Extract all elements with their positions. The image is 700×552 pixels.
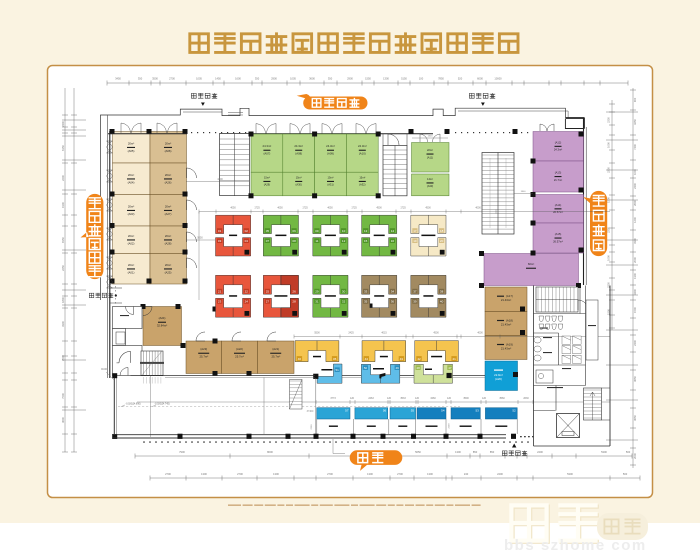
svg-text:1600: 1600	[235, 77, 241, 81]
svg-text:8000: 8000	[267, 450, 273, 454]
svg-text:21.7m²: 21.7m²	[554, 178, 562, 182]
svg-text:(A01): (A01)	[128, 270, 135, 274]
svg-text:1200: 1200	[633, 217, 637, 223]
svg-text:350: 350	[255, 77, 260, 81]
svg-text:1300: 1300	[633, 273, 637, 279]
svg-text:39: 39	[413, 300, 417, 304]
svg-text:37: 37	[413, 289, 417, 293]
svg-text:(A28): (A28)	[165, 241, 172, 245]
svg-text:2700: 2700	[327, 472, 333, 476]
svg-text:4400: 4400	[217, 178, 223, 181]
svg-text:(A33): (A33)	[427, 184, 433, 188]
svg-text:15m²: 15m²	[296, 176, 302, 180]
svg-text:3600: 3600	[61, 417, 65, 423]
svg-text:15: 15	[364, 239, 368, 243]
svg-text:120: 120	[350, 397, 355, 400]
svg-text:56: 56	[383, 409, 387, 413]
svg-text:1300: 1300	[455, 450, 461, 454]
svg-text:3600: 3600	[309, 77, 315, 81]
svg-text:32.84m²: 32.84m²	[157, 324, 167, 328]
svg-text:36: 36	[391, 300, 395, 304]
svg-text:850: 850	[473, 450, 478, 454]
svg-text:20: 20	[440, 239, 444, 243]
svg-text:48: 48	[416, 366, 420, 370]
svg-text:2463: 2463	[368, 397, 374, 400]
svg-text:28: 28	[292, 300, 296, 304]
svg-text:1725: 1725	[400, 207, 406, 210]
svg-text:20m²: 20m²	[165, 263, 171, 267]
svg-text:5050: 5050	[197, 237, 203, 240]
svg-text:11: 11	[315, 239, 318, 243]
svg-text:15m²: 15m²	[328, 176, 334, 180]
svg-text:20m²: 20m²	[128, 173, 134, 177]
svg-text:1300: 1300	[427, 472, 433, 476]
svg-text:24.3m²: 24.3m²	[263, 144, 272, 148]
svg-text:2700: 2700	[237, 472, 243, 476]
svg-text:1725: 1725	[254, 207, 260, 210]
svg-text:01: 01	[218, 229, 222, 233]
svg-text:26: 26	[292, 289, 296, 293]
svg-text:16: 16	[391, 239, 395, 243]
svg-text:46: 46	[298, 357, 302, 361]
svg-text:1005: 1005	[196, 77, 202, 81]
svg-text:2200: 2200	[311, 424, 313, 430]
svg-text:4050: 4050	[277, 207, 283, 210]
svg-text:2900: 2900	[271, 77, 277, 81]
svg-text:120: 120	[447, 397, 452, 400]
svg-text:3560: 3560	[499, 397, 505, 400]
svg-text:(A05): (A05)	[128, 149, 135, 153]
svg-text:1000: 1000	[607, 255, 611, 261]
svg-text:1725: 1725	[302, 207, 308, 210]
svg-text:(A26): (A26)	[165, 180, 172, 184]
svg-text:2400: 2400	[633, 340, 637, 346]
svg-text:1300: 1300	[428, 136, 434, 138]
svg-text:(A32): (A32)	[359, 183, 365, 187]
svg-text:14m²: 14m²	[427, 177, 433, 181]
svg-text:3400: 3400	[633, 289, 637, 295]
svg-text:20m²: 20m²	[128, 263, 134, 267]
svg-text:(A09): (A09)	[327, 152, 334, 156]
svg-text:10: 10	[342, 229, 346, 233]
svg-text:25: 25	[266, 289, 270, 293]
svg-text:37400: 37400	[307, 410, 314, 413]
svg-text:24: 24	[245, 300, 249, 304]
svg-text:51: 51	[336, 368, 340, 372]
svg-text:13: 13	[364, 229, 368, 233]
svg-text:4050: 4050	[327, 207, 333, 210]
svg-text:2250: 2250	[607, 117, 611, 123]
svg-text:24.3m²: 24.3m²	[554, 148, 562, 152]
svg-text:1725: 1725	[351, 207, 357, 210]
svg-text:6150: 6150	[61, 145, 65, 151]
svg-text:29: 29	[315, 289, 319, 293]
svg-text:06: 06	[292, 229, 296, 233]
svg-text:-0.020(24.745): -0.020(24.745)	[154, 404, 169, 406]
svg-text:5150: 5150	[401, 77, 407, 81]
svg-text:57: 57	[345, 409, 349, 413]
svg-text:100: 100	[419, 77, 424, 81]
svg-text:5650: 5650	[415, 450, 421, 454]
svg-text:21.43m²: 21.43m²	[501, 298, 511, 302]
svg-text:(A06): (A06)	[165, 149, 172, 153]
svg-text:2400: 2400	[633, 183, 637, 189]
svg-text:120: 120	[482, 397, 487, 400]
svg-text:20m²: 20m²	[128, 234, 134, 238]
svg-text:(A14): (A14)	[555, 203, 562, 207]
svg-text:2250: 2250	[61, 265, 65, 271]
svg-text:3500: 3500	[463, 397, 469, 400]
svg-text:1300: 1300	[367, 472, 373, 476]
svg-text:900: 900	[633, 97, 637, 102]
svg-text:30: 30	[342, 289, 346, 293]
svg-text:14: 14	[391, 229, 395, 233]
svg-text:1900: 1900	[61, 202, 65, 208]
svg-text:5500: 5500	[314, 332, 320, 335]
svg-text:1500: 1500	[633, 307, 637, 313]
svg-text:22m²: 22m²	[427, 148, 433, 152]
svg-text:22: 22	[245, 289, 249, 293]
svg-text:3300: 3300	[61, 321, 65, 327]
svg-text:03: 03	[218, 239, 222, 243]
svg-text:2700: 2700	[397, 472, 403, 476]
svg-text:21.43m²: 21.43m²	[501, 346, 511, 350]
svg-text:3533: 3533	[400, 397, 406, 400]
svg-text:23: 23	[218, 300, 222, 304]
svg-text:2000: 2000	[633, 453, 637, 459]
svg-text:7900: 7900	[179, 450, 185, 454]
svg-text:2425: 2425	[348, 332, 354, 335]
svg-text:(A08): (A08)	[295, 152, 302, 156]
svg-text:(A27): (A27)	[165, 212, 172, 216]
svg-text:50: 50	[364, 366, 368, 370]
svg-text:3650: 3650	[633, 415, 637, 421]
svg-text:2500: 2500	[61, 355, 65, 361]
svg-text:6000: 6000	[477, 77, 483, 81]
svg-text:(A10): (A10)	[359, 152, 366, 156]
svg-text:2200: 2200	[449, 423, 451, 429]
svg-text:(A12): (A12)	[555, 140, 562, 144]
svg-text:20m²: 20m²	[128, 142, 134, 146]
svg-text:54: 54	[441, 409, 445, 413]
svg-text:4500: 4500	[376, 207, 382, 210]
svg-text:17: 17	[413, 229, 417, 233]
svg-text:3450: 3450	[115, 77, 121, 81]
svg-text:1450: 1450	[215, 77, 221, 81]
svg-text:1300: 1300	[201, 472, 207, 476]
svg-text:44: 44	[365, 357, 369, 361]
svg-text:(A02): (A02)	[128, 241, 135, 245]
svg-text:27: 27	[266, 300, 270, 304]
svg-text:1300: 1300	[383, 77, 389, 81]
svg-text:240: 240	[464, 472, 469, 476]
svg-text:18: 18	[440, 229, 444, 233]
svg-text:3650: 3650	[633, 376, 637, 382]
svg-text:60m²: 60m²	[528, 262, 534, 266]
svg-text:2000: 2000	[633, 257, 637, 263]
svg-text:38: 38	[440, 289, 444, 293]
svg-text:02: 02	[245, 229, 249, 233]
svg-text:2600: 2600	[633, 200, 637, 206]
svg-text:35: 35	[364, 300, 368, 304]
svg-text:(A11): (A11)	[427, 155, 433, 159]
svg-text:08: 08	[292, 239, 296, 243]
svg-text:(A15): (A15)	[555, 232, 562, 236]
svg-text:32: 32	[342, 300, 346, 304]
svg-text:2250: 2250	[607, 167, 611, 173]
svg-text:04: 04	[245, 239, 249, 243]
svg-text:2400: 2400	[497, 472, 503, 476]
svg-text:24.3m²: 24.3m²	[326, 144, 335, 148]
svg-text:25.7m²: 25.7m²	[235, 355, 244, 359]
svg-text:3773: 3773	[330, 397, 336, 400]
svg-text:5300: 5300	[567, 472, 573, 476]
svg-text:(A30): (A30)	[296, 183, 302, 187]
svg-text:1005: 1005	[290, 77, 296, 81]
svg-text:55: 55	[411, 409, 415, 413]
svg-text:15m²: 15m²	[264, 176, 270, 180]
svg-text:43: 43	[400, 357, 404, 361]
svg-text:500: 500	[623, 472, 628, 476]
svg-text:8150: 8150	[61, 237, 65, 243]
svg-text:47: 47	[448, 366, 452, 370]
svg-text:34: 34	[391, 289, 395, 293]
svg-text:5300: 5300	[601, 450, 607, 454]
svg-text:-0.020(24.990): -0.020(24.990)	[125, 404, 140, 406]
svg-text:(A21): (A21)	[272, 347, 279, 351]
svg-text:520: 520	[458, 77, 463, 81]
svg-text:53: 53	[475, 409, 479, 413]
svg-text:7400: 7400	[633, 144, 637, 150]
svg-text:(A04): (A04)	[128, 180, 135, 184]
svg-text:3460: 3460	[430, 397, 436, 400]
svg-text:2400: 2400	[537, 450, 543, 454]
svg-text:350: 350	[328, 77, 333, 81]
svg-text:2400: 2400	[61, 121, 65, 127]
svg-text:4500: 4500	[433, 332, 439, 335]
svg-text:09: 09	[315, 229, 319, 233]
svg-text:1300: 1300	[273, 472, 279, 476]
svg-text:120: 120	[387, 397, 392, 400]
svg-text:(A31): (A31)	[327, 183, 333, 187]
svg-text:2700: 2700	[169, 77, 175, 81]
svg-text:4015: 4015	[381, 332, 387, 335]
svg-text:(A29): (A29)	[264, 183, 270, 187]
svg-text:1550: 1550	[365, 77, 371, 81]
svg-text:20m²: 20m²	[165, 234, 171, 238]
svg-text:24.3m²: 24.3m²	[358, 144, 367, 148]
svg-text:3500: 3500	[152, 77, 158, 81]
svg-text:(A07): (A07)	[263, 152, 270, 156]
svg-text:7850: 7850	[438, 77, 444, 81]
svg-text:20m²: 20m²	[165, 173, 171, 177]
svg-text:(A22): (A22)	[236, 347, 243, 351]
svg-text:26.57m²: 26.57m²	[553, 239, 563, 243]
svg-text:19: 19	[413, 239, 417, 243]
svg-text:1800: 1800	[61, 297, 65, 303]
svg-text:2630: 2630	[523, 397, 529, 400]
svg-text:20m²: 20m²	[128, 205, 134, 209]
svg-text:21: 21	[218, 289, 222, 293]
svg-text:42: 42	[417, 357, 421, 361]
svg-text:33: 33	[364, 289, 368, 293]
svg-text:07: 07	[266, 239, 270, 243]
svg-text:12: 12	[342, 239, 346, 243]
svg-text:52: 52	[512, 409, 516, 413]
svg-text:120: 120	[415, 397, 420, 400]
svg-text:49: 49	[396, 366, 400, 370]
svg-text:25.7m²: 25.7m²	[271, 355, 280, 359]
svg-text:4500: 4500	[425, 207, 431, 210]
svg-text:bbs szhome com: bbs szhome com	[504, 537, 647, 552]
svg-text:2200: 2200	[61, 175, 65, 181]
svg-text:4000: 4000	[475, 207, 481, 210]
svg-text:(A23): (A23)	[200, 347, 207, 351]
svg-text:(A24): (A24)	[159, 316, 166, 320]
svg-text:2700: 2700	[165, 472, 171, 476]
svg-text:(A13): (A13)	[555, 171, 562, 175]
svg-text:(A20): (A20)	[495, 377, 502, 381]
svg-text:26.57m²: 26.57m²	[553, 210, 563, 214]
svg-text:15m²: 15m²	[359, 176, 365, 180]
svg-text:4000: 4000	[477, 332, 483, 335]
svg-text:20m²: 20m²	[165, 205, 171, 209]
svg-text:500: 500	[626, 450, 631, 454]
svg-text:20m²: 20m²	[165, 142, 171, 146]
svg-text:2900: 2900	[347, 77, 353, 81]
svg-text:(A25): (A25)	[165, 270, 172, 274]
svg-text:3300: 3300	[633, 238, 637, 244]
svg-text:1800: 1800	[521, 191, 527, 193]
svg-text:05: 05	[266, 229, 270, 233]
svg-text:10000: 10000	[494, 77, 502, 81]
svg-text:3250: 3250	[633, 119, 637, 125]
svg-text:(A03): (A03)	[128, 212, 135, 216]
svg-text:350: 350	[138, 77, 143, 81]
svg-text:31: 31	[315, 300, 319, 304]
svg-text:4050: 4050	[230, 207, 236, 210]
svg-text:25.7m²: 25.7m²	[199, 355, 208, 359]
svg-text:24.3m²: 24.3m²	[294, 144, 303, 148]
svg-text:850: 850	[490, 450, 495, 454]
svg-text:41: 41	[452, 357, 456, 361]
svg-text:1000: 1000	[607, 142, 611, 148]
svg-text:±0.00: ±0.00	[101, 369, 107, 371]
svg-text:7500: 7500	[61, 393, 65, 399]
svg-text:40: 40	[440, 300, 444, 304]
svg-text:45: 45	[333, 357, 337, 361]
svg-text:21.43m²: 21.43m²	[501, 322, 511, 326]
svg-text:1000: 1000	[633, 169, 637, 175]
